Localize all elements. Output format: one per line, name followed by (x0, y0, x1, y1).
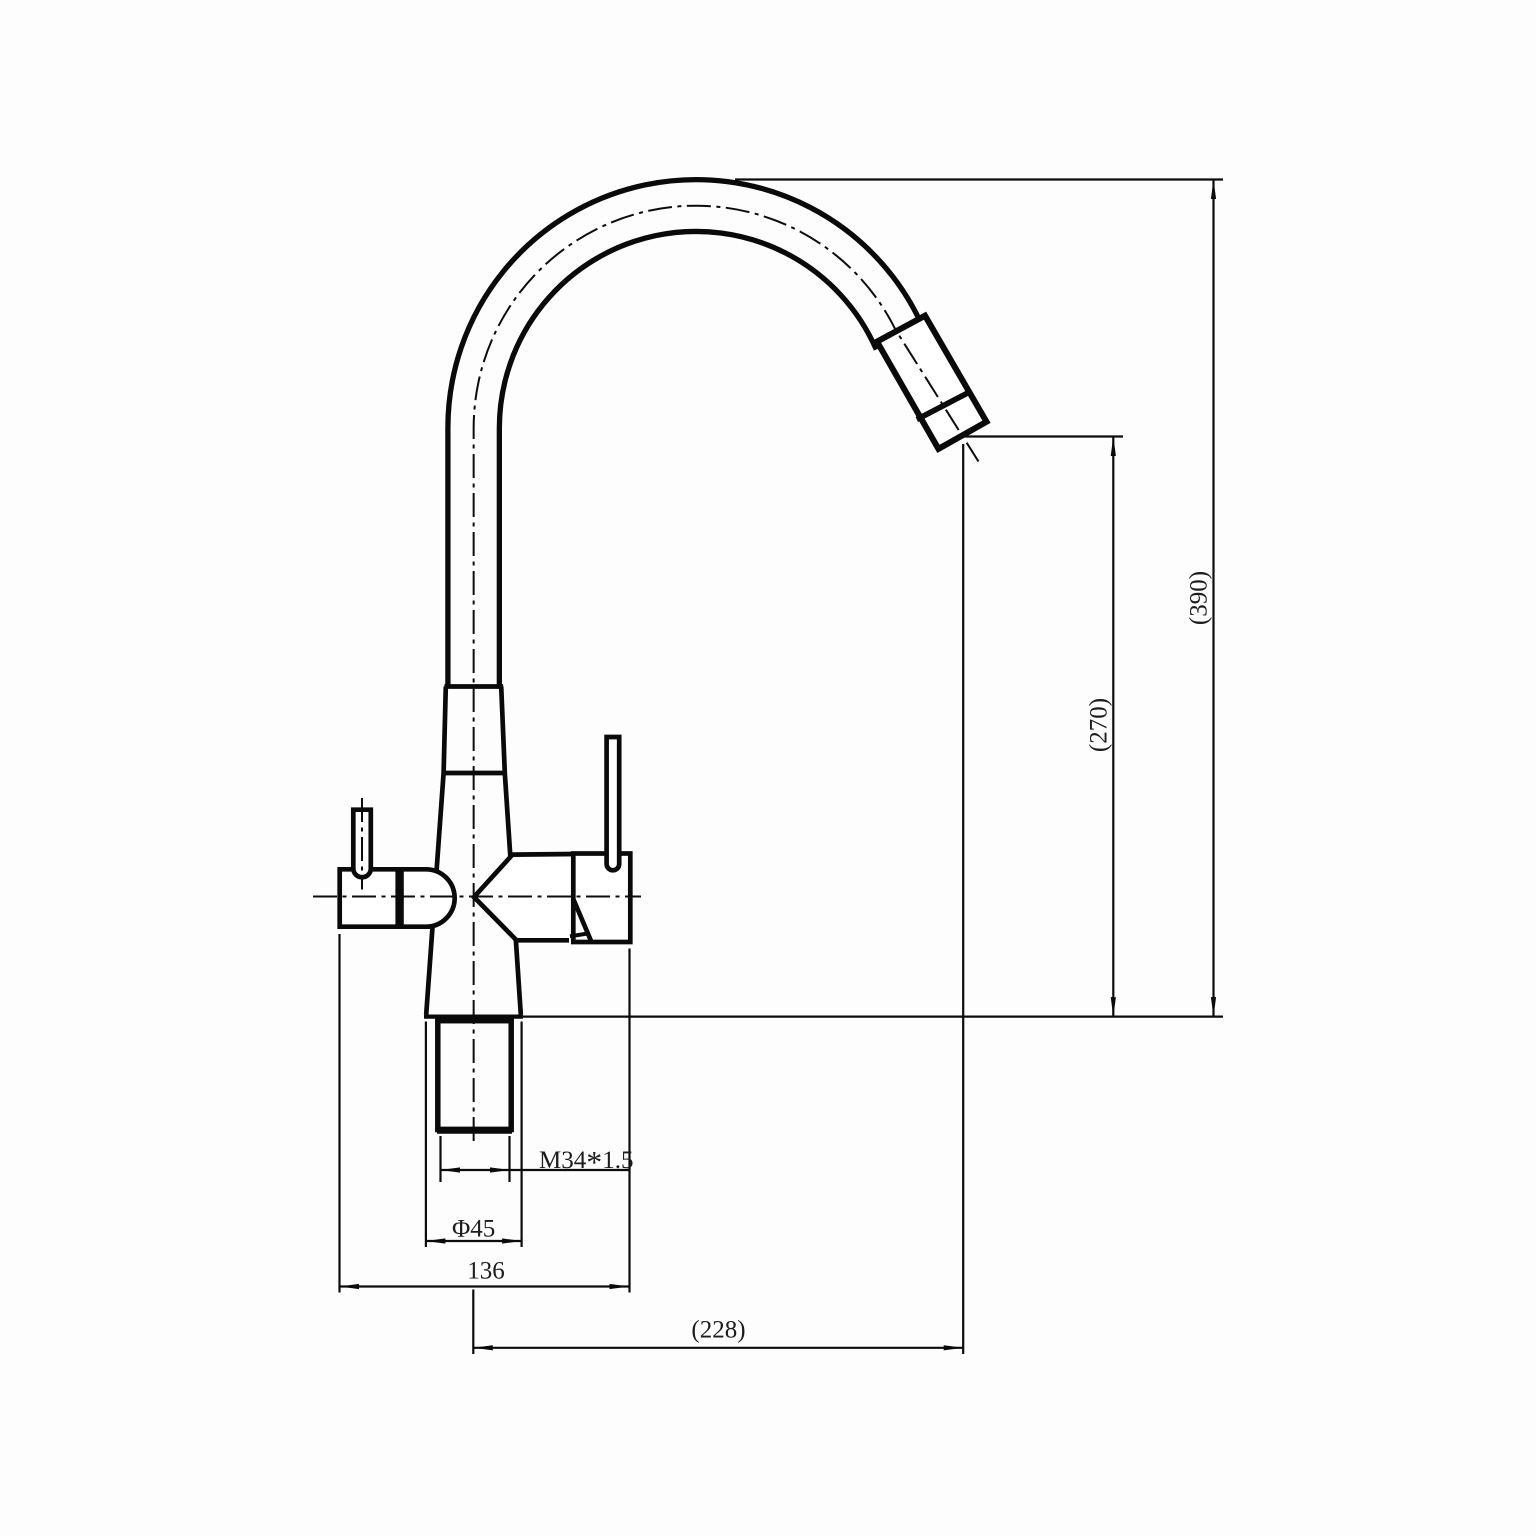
svg-text:136: 136 (467, 1258, 505, 1285)
svg-text:Φ45: Φ45 (452, 1216, 495, 1243)
svg-text:(270): (270) (1085, 698, 1112, 752)
svg-text:(228): (228) (691, 1317, 745, 1344)
svg-text:(390): (390) (1186, 571, 1213, 625)
